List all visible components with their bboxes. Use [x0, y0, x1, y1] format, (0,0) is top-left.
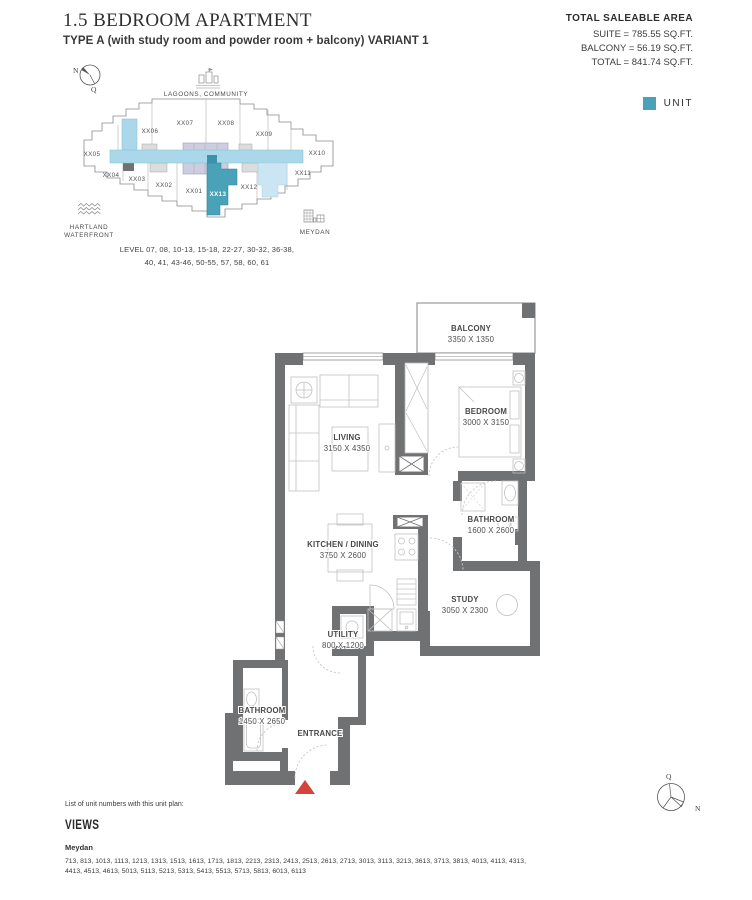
waterfront-icon — [78, 204, 100, 215]
landmark-top-label: LAGOONS, COMMUNITY — [164, 91, 248, 98]
unit-label-xx09: XX09 — [256, 131, 273, 138]
stove-icon — [395, 534, 418, 560]
unit-numbers-line-2: 4413, 4513, 4613, 5013, 5113, 5213, 5313… — [65, 867, 665, 877]
room-living-dims: 3150 X 4350 — [324, 444, 371, 453]
entrance-label: ENTRANCE — [298, 729, 343, 738]
sofa-l-icon — [289, 405, 319, 491]
landmark-left-label-1: HARTLAND — [70, 224, 109, 231]
room-utility-name: UTILITY — [328, 630, 359, 639]
side-table-icon — [291, 377, 317, 403]
views-heading: VIEWS — [65, 816, 99, 832]
unit-label-xx12: XX12 — [241, 184, 258, 191]
room-bathroom2-name: BATHROOM — [239, 706, 286, 715]
levels-line-2: 40, 41, 43-46, 50-55, 57, 58, 60, 61 — [145, 258, 270, 267]
site-plan-diagram: XX05 XX06 XX07 XX08 XX09 XX10 XX11 XX04 … — [55, 58, 365, 273]
room-bathroom1-name: BATHROOM — [468, 515, 515, 524]
shaft-icon — [399, 456, 424, 472]
entrance-marker — [295, 780, 315, 794]
unit-label-xx08: XX08 — [218, 120, 235, 127]
unit-label-xx10: XX10 — [309, 150, 326, 157]
vertical-corridor — [122, 119, 137, 150]
compass-north-icon: N Q — [73, 65, 100, 94]
room-kitchen-name: KITCHEN / DINING — [307, 540, 379, 549]
unit-label-xx05: XX05 — [84, 151, 101, 158]
area-summary-heading: TOTAL SALEABLE AREA — [566, 13, 693, 24]
unit-label-xx03: XX03 — [129, 176, 146, 183]
room-study-dims: 3050 X 2300 — [442, 606, 489, 615]
unit-swatch-rect — [643, 97, 656, 110]
room-balcony-name: BALCONY — [451, 324, 492, 333]
shower-icon — [461, 483, 485, 511]
unit-legend-swatch — [643, 97, 656, 110]
floor-plan: BALCONY 3350 X 1350 BEDROOM 3000 X 3150 … — [225, 293, 555, 805]
compass-q-label: Q — [91, 85, 97, 94]
meydan-icon — [304, 210, 324, 222]
landmark-left-label-2: WATERFRONT — [64, 232, 114, 239]
view-name: Meydan — [65, 843, 93, 852]
unit-label-xx06: XX06 — [142, 128, 159, 135]
sink-icon — [502, 481, 518, 505]
nightstand-icon-bottom — [513, 459, 525, 473]
compass-n-label: N — [73, 66, 79, 75]
kitchen-sink-icon — [397, 609, 416, 631]
compass-bottom-icon: Q N — [645, 758, 725, 838]
area-balcony: BALCONY = 56.19 SQ.FT. — [566, 42, 693, 56]
unit-list-note: List of unit numbers with this unit plan… — [65, 801, 184, 808]
levels-line-1: LEVEL 07, 08, 10-13, 15-18, 22-27, 30-32… — [120, 245, 294, 254]
room-bedroom-name: BEDROOM — [465, 407, 507, 416]
room-kitchen-dims: 3750 X 2600 — [320, 551, 367, 560]
floorplan-page: 1.5 BEDROOM APARTMENT TYPE A (with study… — [0, 0, 752, 900]
room-study-name: STUDY — [451, 595, 479, 604]
unit-numbers-line-1: 713, 813, 1013, 1113, 1213, 1313, 1513, … — [65, 857, 665, 867]
unit-label-xx11: XX11 — [295, 170, 311, 177]
area-total: TOTAL = 841.74 SQ.FT. — [566, 56, 693, 70]
room-balcony-dims: 3350 X 1350 — [448, 335, 495, 344]
compass-bottom-n-label: N — [695, 804, 701, 813]
wardrobe-icon — [405, 363, 428, 453]
desk-chair-icon — [497, 595, 518, 616]
compass-bottom-q-label: Q — [666, 772, 672, 781]
unit-label-xx13-highlighted: XX13 — [210, 191, 227, 198]
lagoons-icon — [196, 68, 220, 88]
landmark-right-label: MEYDAN — [300, 229, 331, 236]
room-utility-dims: 800 X 1200 — [322, 641, 364, 650]
area-suite: SUITE = 785.55 SQ.FT. — [566, 28, 693, 42]
unit-legend-label: UNIT — [664, 98, 693, 109]
drawers-icon — [397, 579, 416, 605]
dark-service-block — [123, 162, 134, 171]
nightstand-icon-top — [513, 371, 525, 385]
room-living-name: LIVING — [333, 433, 360, 442]
main-corridor — [110, 150, 303, 163]
page-title: 1.5 BEDROOM APARTMENT — [63, 10, 312, 32]
tv-unit-icon — [379, 424, 395, 472]
cabinet-door-icon — [370, 585, 394, 609]
sofa-icon — [320, 375, 378, 407]
unit-legend: UNIT — [643, 97, 693, 110]
unit-label-xx04: XX04 — [103, 172, 120, 179]
unit-label-xx07: XX07 — [177, 120, 194, 127]
unit-label-xx02: XX02 — [156, 182, 173, 189]
area-summary: TOTAL SALEABLE AREA SUITE = 785.55 SQ.FT… — [566, 13, 693, 70]
room-bathroom1-dims: 1600 X 2600 — [468, 526, 515, 535]
unit-numbers-list: 713, 813, 1013, 1113, 1213, 1313, 1513, … — [65, 857, 665, 877]
room-bathroom2-dims: 1450 X 2650 — [239, 717, 286, 726]
page-subtitle: TYPE A (with study room and powder room … — [63, 35, 429, 47]
room-bedroom-dims: 3000 X 3150 — [463, 418, 510, 427]
vent-box-icon — [397, 517, 423, 527]
unit-label-xx01: XX01 — [186, 188, 203, 195]
